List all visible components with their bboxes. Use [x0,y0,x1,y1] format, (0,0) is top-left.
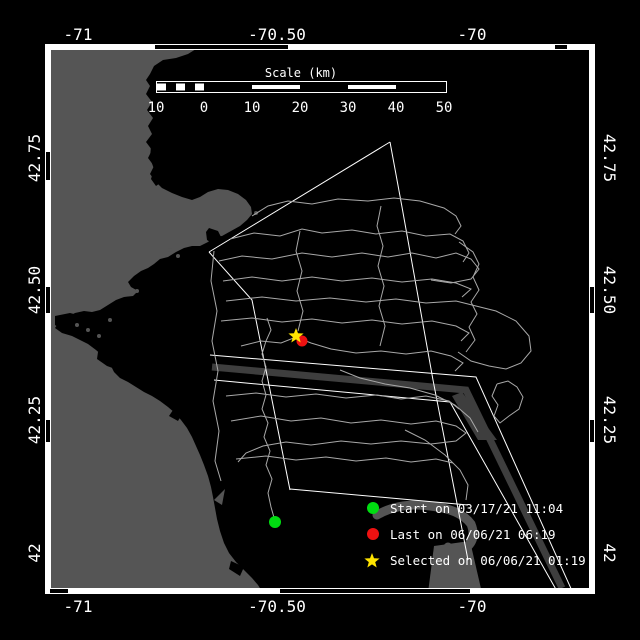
axis-labels-right: 42.75 42.50 42.25 42 [600,134,619,563]
axis-label: -70 [458,25,487,44]
frame-segment [590,45,595,287]
axis-label: 42 [600,543,619,562]
start-legend-marker [367,502,379,514]
frame-segment [45,442,50,593]
scale-tick: 20 [292,100,309,116]
legend-label-start: Start on 03/17/21 11:04 [390,501,563,516]
axis-label: -71 [64,597,93,616]
axis-label: 42.25 [25,396,44,444]
scale-tick: 30 [340,100,357,116]
island [176,254,180,258]
axis-label: -70 [458,597,487,616]
duxbury-beach [214,489,225,505]
track-segment-to-start [262,318,275,521]
track-segment [231,416,466,462]
track-segment [405,430,468,500]
harbor-island [108,318,112,322]
frame-segment [590,442,595,593]
track-segment [219,253,479,283]
frame-segment [288,45,555,50]
harbor-island [97,334,101,338]
axis-label: -70.50 [248,25,306,44]
legend-item-start[interactable]: Start on 03/17/21 11:04 [367,501,563,516]
track-segment [241,337,463,371]
axis-label: 42.25 [600,396,619,444]
track-segment [296,231,303,331]
start-position-marker[interactable] [269,516,281,528]
axis-label: 42.75 [600,134,619,182]
axis-label: 42.50 [25,266,44,314]
frame-segment [45,45,50,152]
hingham-bay [129,373,145,385]
frame-segment [45,180,50,287]
drifter-track-map-window: -71 -70.50 -70 -71 -70.50 -70 42.75 42.5… [0,0,640,640]
last-legend-marker [367,528,379,540]
axis-label: 42.75 [25,134,44,182]
estuary [153,126,163,142]
frame-segment [590,313,595,420]
scale-bar-cell [157,84,166,91]
scale-bar-stripe [252,85,300,89]
island [135,289,139,293]
track-segment [226,393,459,409]
precautionary-area-wedge [452,392,497,440]
axis-labels-top: -71 -70.50 -70 [64,25,487,44]
scale-bar-title: Scale (km) [265,66,337,80]
track-segment [226,297,531,369]
legend-item-selected[interactable]: Selected on 06/06/21 01:19 [364,553,585,568]
track-segment [252,198,461,234]
axis-labels-bottom: -71 -70.50 -70 [64,597,487,616]
island [168,248,172,252]
scale-bar: Scale (km) 10 0 10 20 30 40 50 [148,66,453,116]
scale-tick: 50 [436,100,453,116]
scale-tick: 40 [388,100,405,116]
axis-label: 42.50 [600,266,619,314]
frame-segment [68,588,280,593]
scale-tick: 10 [244,100,261,116]
frame-segment [45,313,50,420]
scale-bar-stripe [348,85,396,89]
boundary-lines [209,142,573,593]
position-markers[interactable] [269,328,308,528]
track-loop-offshore [492,381,523,423]
harbor-island [75,323,79,327]
track-segment [377,206,385,346]
frame-segment [470,588,594,593]
scale-bar-cell [195,84,204,91]
axis-label: -70.50 [248,597,306,616]
legend-item-last[interactable]: Last on 06/06/21 06:19 [367,527,556,542]
selected-legend-star [364,553,379,568]
map-canvas[interactable]: -71 -70.50 -70 -71 -70.50 -70 42.75 42.5… [0,0,640,640]
scale-bar-cell [176,84,185,91]
scale-tick: 0 [200,100,208,116]
axis-label: 42 [25,543,44,562]
harbor-island [86,328,90,332]
axis-labels-left: 42.75 42.50 42.25 42 [25,134,44,563]
legend-label-last: Last on 06/06/21 06:19 [390,527,556,542]
scale-bar-tick-labels: 10 0 10 20 30 40 50 [148,100,453,116]
axis-label: -71 [64,25,93,44]
frame-segment [45,45,155,50]
legend-label-selected: Selected on 06/06/21 01:19 [390,553,586,568]
scale-tick: 10 [148,100,165,116]
legend: Start on 03/17/21 11:04 Last on 06/06/21… [364,501,585,568]
